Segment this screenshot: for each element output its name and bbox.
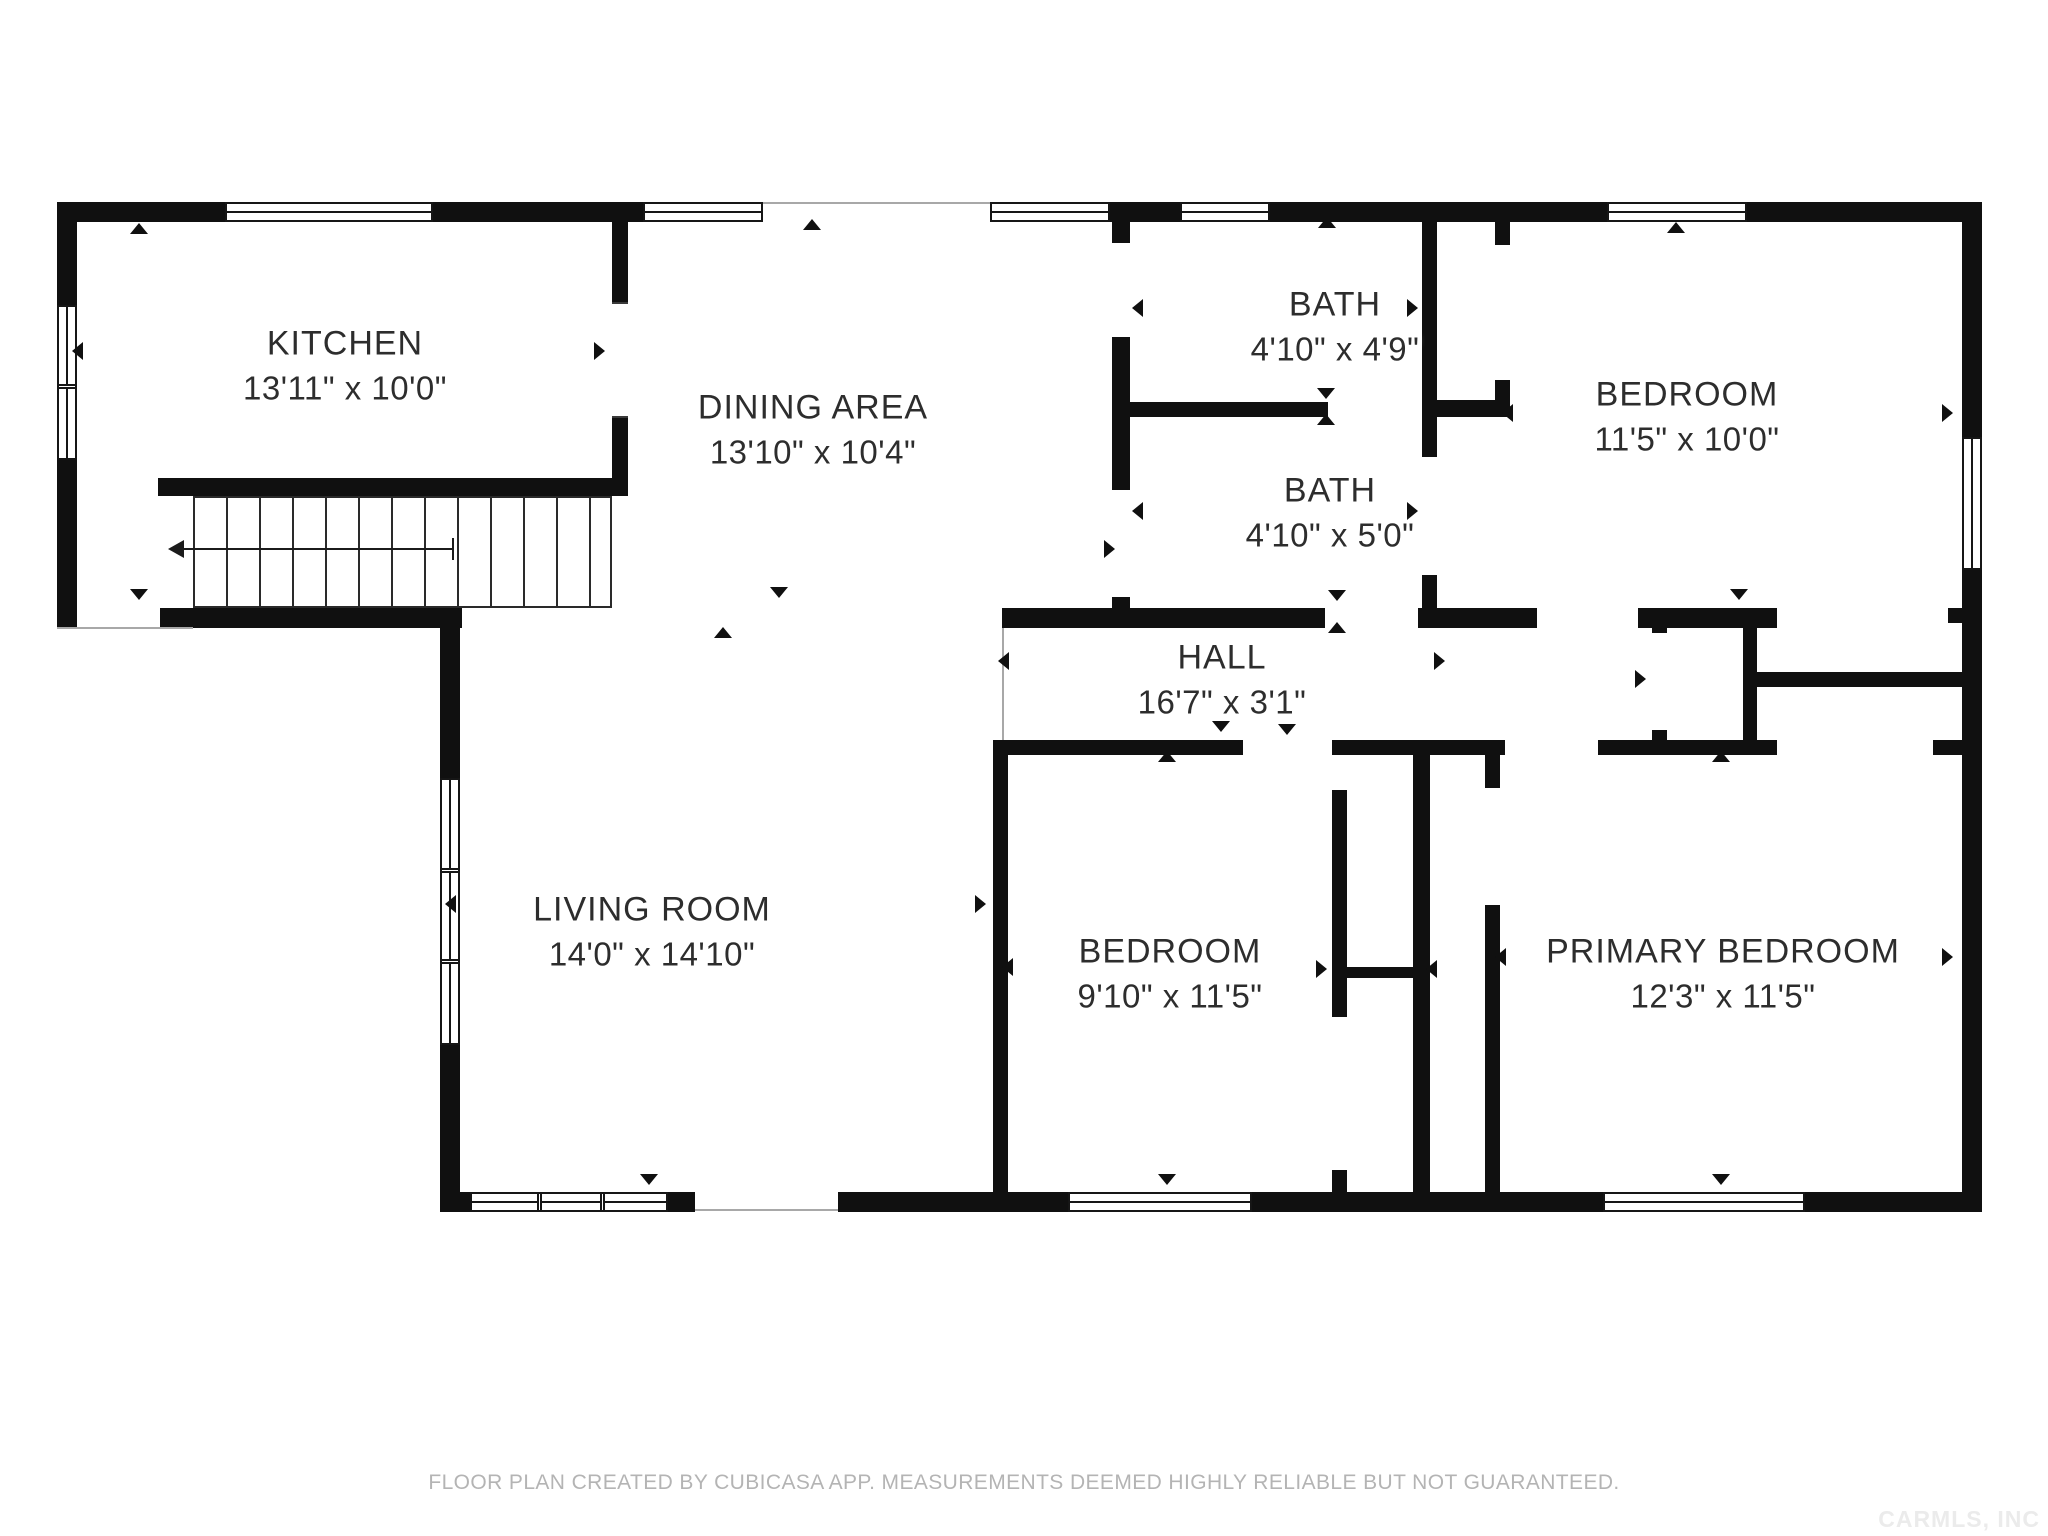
open-edge-line xyxy=(1002,628,1004,740)
wall-opening xyxy=(612,302,628,418)
room-name: PRIMARY BEDROOM xyxy=(1546,933,1900,972)
door-direction-arrow-icon xyxy=(1942,404,1953,422)
door-direction-arrow-icon xyxy=(1712,751,1730,762)
window xyxy=(1180,202,1270,222)
wall-segment xyxy=(1332,1170,1347,1192)
window xyxy=(225,202,433,222)
door-direction-arrow-icon xyxy=(1158,1174,1176,1185)
door-direction-arrow-icon xyxy=(1712,1174,1730,1185)
room-dimensions: 12'3" x 11'5" xyxy=(1546,978,1900,1016)
wall-segment xyxy=(57,460,77,627)
wall-segment xyxy=(1962,202,1982,437)
wall-segment xyxy=(1495,222,1510,245)
window-glass-line xyxy=(1605,1201,1803,1203)
window xyxy=(1607,202,1747,222)
door-direction-arrow-icon xyxy=(640,1174,658,1185)
wall-segment xyxy=(1332,967,1430,978)
wall-segment xyxy=(1130,402,1328,417)
door-direction-arrow-icon xyxy=(1317,414,1335,425)
wall-segment xyxy=(1112,337,1130,490)
wall-segment xyxy=(1805,1192,1982,1212)
door-direction-arrow-icon xyxy=(1942,948,1953,966)
wall-segment xyxy=(1112,220,1130,243)
door-direction-arrow-icon xyxy=(1434,652,1445,670)
room-label: LIVING ROOM14'0" x 14'10" xyxy=(533,891,771,974)
door-direction-arrow-icon xyxy=(1328,622,1346,633)
door-direction-arrow-icon xyxy=(714,627,732,638)
door-direction-arrow-icon xyxy=(1002,958,1013,976)
room-label: DINING AREA13'10" x 10'4" xyxy=(698,389,928,472)
door-direction-arrow-icon xyxy=(1316,960,1327,978)
wall-segment xyxy=(433,202,643,222)
wall-segment xyxy=(1485,755,1500,788)
window-glass-line xyxy=(992,211,1108,213)
room-dimensions: 14'0" x 14'10" xyxy=(533,936,771,974)
window xyxy=(1962,437,1982,570)
door-direction-arrow-icon xyxy=(1328,590,1346,601)
door-direction-arrow-icon xyxy=(1317,388,1335,399)
wall-segment xyxy=(440,1192,470,1212)
door-direction-arrow-icon xyxy=(1132,502,1143,520)
room-name: BATH xyxy=(1246,472,1415,511)
wall-segment xyxy=(1332,740,1505,755)
door-direction-arrow-icon xyxy=(1495,948,1506,966)
door-direction-arrow-icon xyxy=(1730,589,1748,600)
room-name: LIVING ROOM xyxy=(533,891,771,930)
wall-segment xyxy=(1948,608,1962,623)
room-label: BEDROOM11'5" x 10'0" xyxy=(1594,376,1779,459)
wall-segment xyxy=(1422,220,1437,457)
wall-segment xyxy=(1422,400,1510,417)
room-dimensions: 13'10" x 10'4" xyxy=(698,434,928,472)
window-glass-line xyxy=(1971,439,1973,568)
wall-segment xyxy=(1002,608,1325,628)
door-direction-arrow-icon xyxy=(1667,222,1685,233)
window-glass-line xyxy=(227,211,431,213)
wall-segment xyxy=(1757,672,1962,687)
floor-plan: KITCHEN13'11" x 10'0"DINING AREA13'10" x… xyxy=(0,0,2048,1536)
door-direction-arrow-icon xyxy=(1426,960,1437,978)
door-direction-arrow-icon xyxy=(1278,724,1296,735)
door-direction-arrow-icon xyxy=(1132,299,1143,317)
room-label: BATH4'10" x 5'0" xyxy=(1246,472,1415,555)
wall-segment xyxy=(1652,623,1667,633)
window xyxy=(1603,1192,1805,1212)
window-glass-line xyxy=(1182,211,1268,213)
wall-segment xyxy=(1252,1192,1603,1212)
window xyxy=(57,305,77,460)
window xyxy=(643,202,763,222)
wall-segment xyxy=(1110,202,1180,222)
room-dimensions: 11'5" x 10'0" xyxy=(1594,421,1779,459)
window-glass-line xyxy=(645,211,761,213)
door-direction-arrow-icon xyxy=(594,342,605,360)
door-direction-arrow-icon xyxy=(1104,540,1115,558)
window-glass-line xyxy=(472,1201,666,1203)
wall-segment xyxy=(1962,570,1982,1212)
room-dimensions: 13'11" x 10'0" xyxy=(243,370,447,408)
window-divider xyxy=(537,1194,542,1210)
door-direction-arrow-icon xyxy=(803,219,821,230)
door-direction-arrow-icon xyxy=(998,652,1009,670)
room-name: HALL xyxy=(1138,639,1307,678)
window-divider xyxy=(600,1194,605,1210)
door-direction-arrow-icon xyxy=(1502,404,1513,422)
wall-segment xyxy=(57,202,77,305)
room-label: BATH4'10" x 4'9" xyxy=(1251,286,1420,369)
wall-segment xyxy=(1933,740,1962,755)
window-glass-line xyxy=(66,307,68,458)
wall-segment xyxy=(57,202,225,222)
room-name: KITCHEN xyxy=(243,325,447,364)
room-dimensions: 9'10" x 11'5" xyxy=(1077,978,1262,1016)
open-edge-line xyxy=(57,627,193,629)
room-label: HALL16'7" x 3'1" xyxy=(1138,639,1307,722)
wall-segment xyxy=(440,608,460,778)
door-direction-arrow-icon xyxy=(130,223,148,234)
wall-segment xyxy=(1332,790,1347,1017)
wall-segment xyxy=(160,608,462,628)
wall-segment xyxy=(1418,608,1537,628)
wall-segment xyxy=(612,418,628,478)
room-dimensions: 16'7" x 3'1" xyxy=(1138,684,1307,722)
watermark: CARMLS, INC xyxy=(1878,1506,2040,1533)
room-dimensions: 4'10" x 4'9" xyxy=(1251,331,1420,369)
room-name: BEDROOM xyxy=(1077,933,1262,972)
door-direction-arrow-icon xyxy=(1635,670,1646,688)
footer-note: FLOOR PLAN CREATED BY CUBICASA APP. MEAS… xyxy=(428,1471,1619,1495)
stairs-direction-arrow xyxy=(182,548,452,550)
window xyxy=(990,202,1110,222)
window-divider xyxy=(59,384,75,389)
wall-segment xyxy=(1743,608,1757,755)
wall-segment xyxy=(1652,730,1667,740)
window-divider xyxy=(442,959,458,964)
room-name: DINING AREA xyxy=(698,389,928,428)
door-direction-arrow-icon xyxy=(130,589,148,600)
wall-segment xyxy=(158,478,628,496)
room-name: BEDROOM xyxy=(1594,376,1779,415)
door-direction-arrow-icon xyxy=(1318,217,1336,228)
door-direction-arrow-icon xyxy=(445,895,456,913)
open-edge-line xyxy=(695,1209,838,1211)
door-direction-arrow-icon xyxy=(1158,751,1176,762)
wall-segment xyxy=(440,1045,460,1192)
door-direction-arrow-icon xyxy=(975,895,986,913)
wall-segment xyxy=(1747,202,1982,222)
room-label: BEDROOM9'10" x 11'5" xyxy=(1077,933,1262,1016)
wall-segment xyxy=(993,740,1243,755)
window xyxy=(470,1192,668,1212)
window-divider xyxy=(442,868,458,873)
door-direction-arrow-icon xyxy=(770,587,788,598)
window xyxy=(1068,1192,1252,1212)
window-glass-line xyxy=(1070,1201,1250,1203)
wall-segment xyxy=(668,1192,695,1212)
room-label: PRIMARY BEDROOM12'3" x 11'5" xyxy=(1546,933,1900,1016)
wall-segment xyxy=(1413,978,1430,1192)
stairs-arrow-head-icon xyxy=(168,540,184,558)
wall-segment xyxy=(838,1192,1068,1212)
room-name: BATH xyxy=(1251,286,1420,325)
wall-segment xyxy=(612,222,628,302)
stairs xyxy=(193,496,612,608)
room-dimensions: 4'10" x 5'0" xyxy=(1246,517,1415,555)
open-edge-line xyxy=(763,202,990,204)
door-direction-arrow-icon xyxy=(1212,721,1230,732)
window-glass-line xyxy=(1609,211,1745,213)
door-direction-arrow-icon xyxy=(72,342,83,360)
wall-segment xyxy=(1413,755,1430,967)
stairs-arrow-tick xyxy=(452,538,454,560)
room-label: KITCHEN13'11" x 10'0" xyxy=(243,325,447,408)
